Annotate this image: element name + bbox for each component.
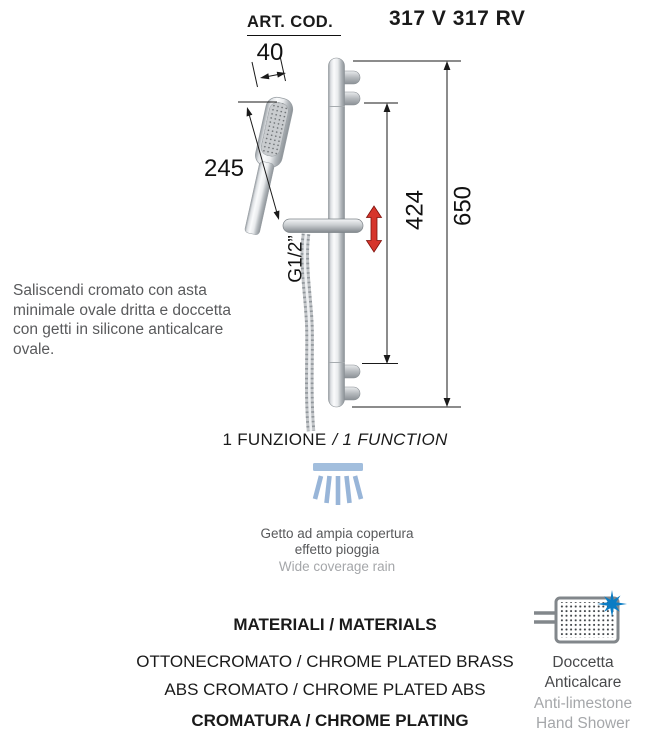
article-code: 317 V 317 RV — [389, 7, 525, 31]
shower-head-nozzles — [560, 602, 614, 638]
slide-direction-arrow — [367, 206, 382, 252]
badge-label-it: Doccetta Anticalcare — [518, 653, 648, 694]
anti-limestone-badge: Doccetta Anticalcare Anti-limestone Hand… — [518, 585, 648, 735]
dim-label-650: 650 — [450, 186, 477, 226]
dim-label-245: 245 — [204, 155, 244, 182]
datasheet-page: { "header": { "art_cod_label": "ART. COD… — [0, 0, 649, 747]
arrowhead — [274, 211, 280, 221]
materials-title: MATERIALI / MATERIALS — [110, 615, 560, 635]
badge-labels: Doccetta Anticalcare Anti-limestone Hand… — [518, 653, 648, 735]
arrowhead — [260, 73, 269, 79]
jet-caption-en: Wide coverage rain — [252, 559, 422, 575]
dim-650 — [352, 61, 461, 407]
dim-424 — [362, 103, 398, 364]
plating-line: CROMATURA / CHROME PLATING — [105, 711, 555, 731]
slider-holder — [283, 219, 363, 233]
rain-spray-icon — [308, 462, 368, 514]
arrowhead — [444, 398, 451, 407]
arrowhead — [247, 107, 253, 117]
materials-lines: OTTONECROMATO / CHROME PLATED BRASS ABS … — [95, 648, 555, 704]
badge-label-en: Anti-limestone Hand Shower — [518, 694, 648, 735]
arrowhead — [384, 355, 391, 364]
material-line: OTTONECROMATO / CHROME PLATED BRASS — [95, 648, 555, 676]
function-label-it: 1 FUNZIONE — [222, 430, 326, 449]
function-title: 1 FUNZIONE/ 1 FUNCTION — [115, 430, 555, 450]
hand-shower-handle — [244, 161, 274, 236]
arrowhead — [384, 103, 391, 112]
jet-captions: Getto ad ampia copertura effetto pioggia… — [252, 526, 422, 575]
product-description: Saliscendi cromato con asta minimale ova… — [13, 281, 249, 359]
jet-caption-it: Getto ad ampia copertura effetto pioggia — [252, 526, 422, 557]
function-label-en: / 1 FUNCTION — [333, 430, 448, 449]
arrowhead — [444, 61, 451, 70]
thread-size-label: G1/2” — [286, 235, 307, 283]
art-cod-label: ART. COD. — [247, 13, 341, 36]
material-line: ABS CROMATO / CHROME PLATED ABS — [95, 676, 555, 704]
anti-limestone-shower-icon — [532, 585, 634, 645]
dim-label-40: 40 — [257, 40, 284, 66]
technical-drawing: 40 245 424 650 G1/2” — [190, 40, 490, 445]
dim-label-424: 424 — [402, 190, 429, 230]
